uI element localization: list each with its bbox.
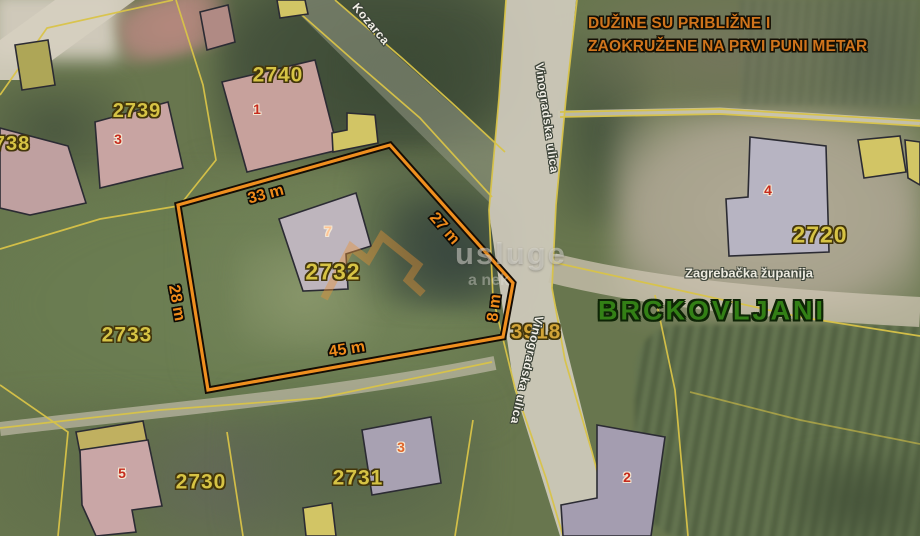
building-number-5: 5 — [118, 466, 126, 480]
parcel-number-2733: 2733 — [102, 325, 153, 346]
disclaimer-line2: ZAOKRUŽENE NA PRVI PUNI METAR — [588, 35, 867, 58]
parcel-number-2740: 2740 — [253, 65, 304, 86]
parcel-number-2730: 2730 — [176, 472, 227, 493]
building-number-3: 3 — [114, 132, 122, 146]
parcel-number-2738: 2738 — [0, 134, 30, 154]
watermark-text-small: a nek — [468, 272, 509, 290]
parcel-number-2739: 2739 — [113, 101, 162, 121]
dimension-label-8-m: 8 m — [485, 293, 504, 322]
county-label: Zagrebačka županija — [685, 266, 813, 281]
building-number-4: 4 — [764, 183, 772, 197]
street-label-vinogradska-ulica: Vinogradska ulica — [533, 62, 560, 174]
disclaimer-note: DUŽINE SU PRIBLIŽNE I ZAOKRUŽENE NA PRVI… — [588, 12, 867, 58]
dimension-label-28-m: 28 m — [165, 284, 187, 323]
parcel-number-2731: 2731 — [333, 468, 384, 489]
dimension-label-45-m: 45 m — [328, 339, 367, 361]
building-number-2: 2 — [623, 470, 631, 484]
parcel-number-2732: 2732 — [305, 261, 360, 284]
building-number-3: 3 — [397, 440, 405, 454]
watermark-text-large: usluge — [455, 236, 567, 272]
building-number-1: 1 — [253, 102, 261, 116]
satellite-map-canvas: 2740273927382732273327302731272039181374… — [0, 0, 920, 536]
parcel-number-2720: 2720 — [792, 224, 847, 247]
dimension-label-33-m: 33 m — [246, 183, 285, 208]
disclaimer-line1: DUŽINE SU PRIBLIŽNE I — [588, 12, 867, 35]
building-number-7: 7 — [324, 224, 332, 238]
street-label-kozarca: Kozarca — [350, 1, 391, 47]
place-label: BRCKOVLJANI — [598, 296, 826, 327]
